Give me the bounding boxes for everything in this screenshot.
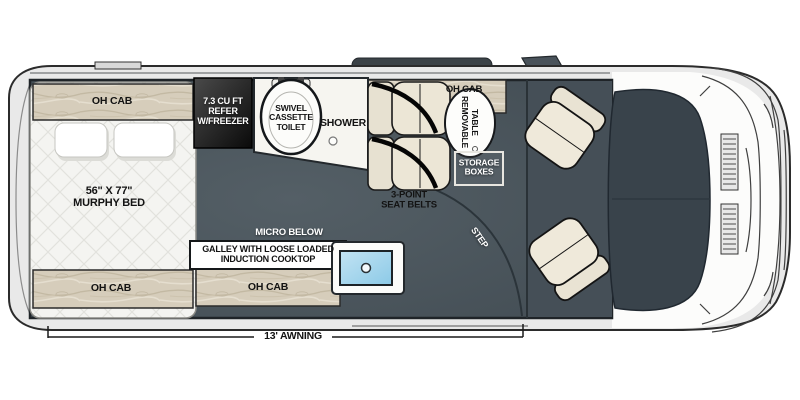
toilet-label: SWIVEL CASSETTE TOILET [269, 104, 313, 132]
toilet-label-line3: TOILET [269, 123, 313, 132]
refrigerator-label-line3: W/FREEZER [197, 117, 248, 127]
murphy-bed-size: 56" X 77" [73, 185, 145, 197]
oh-cab-bottom-left-label: OH CAB [91, 283, 131, 295]
oh-cab-galley-label: OH CAB [248, 282, 288, 294]
dashboard [608, 90, 710, 311]
removable-table-label-line2: TABLE [469, 96, 479, 148]
pillow-right-icon [114, 123, 176, 161]
murphy-bed-label: 56" X 77" MURPHY BED [73, 185, 145, 209]
galley-label-line2: INDUCTION COOKTOP [202, 255, 334, 265]
awning-label: 13' AWNING [259, 331, 327, 343]
rv-floorplan-diagram: OH CAB 56" X 77" MURPHY BED OH CAB 7.3 C… [0, 0, 800, 400]
murphy-bed-name: MURPHY BED [73, 197, 145, 209]
refrigerator-label: 7.3 CU FT REFER W/FREEZER [197, 97, 248, 127]
bench-seat-bottom [368, 137, 450, 190]
removable-table-label-line1: REMOVABLE [459, 96, 469, 148]
oh-cab-dinette-label: OH CAB [446, 85, 482, 95]
shower-label: SHOWER [320, 118, 366, 130]
galley-label: GALLEY WITH LOOSE LOADED INDUCTION COOKT… [202, 245, 334, 265]
seat-belts-label: 3-POINT SEAT BELTS [381, 191, 437, 212]
shower-drain-icon [329, 137, 337, 145]
oh-cab-top-left-label: OH CAB [92, 96, 132, 108]
faucet-icon [362, 264, 371, 273]
storage-boxes-label-line2: BOXES [459, 168, 499, 177]
storage-boxes-label: STORAGE BOXES [459, 159, 499, 178]
micro-below-label: MICRO BELOW [255, 228, 322, 238]
seat-belts-label-line2: SEAT BELTS [381, 201, 437, 211]
pillow-left-icon [55, 123, 109, 161]
removable-table-label: REMOVABLE TABLE [459, 96, 479, 148]
galley-counter [332, 242, 404, 294]
bench-seat-top [368, 82, 450, 135]
